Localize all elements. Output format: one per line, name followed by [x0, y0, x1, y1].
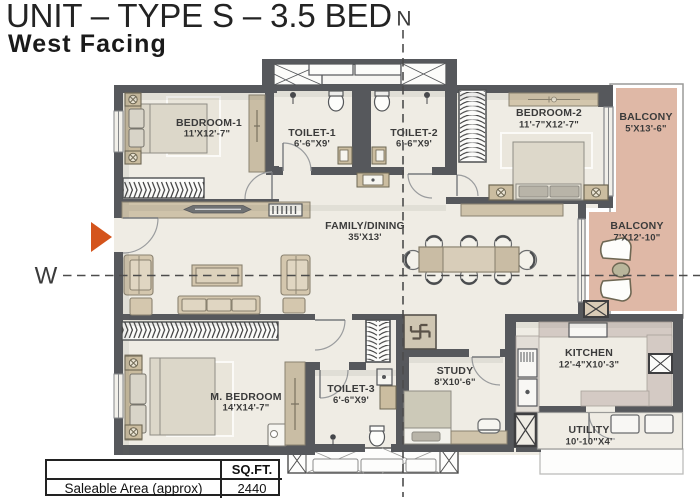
- svg-text:10'-10"X4': 10'-10"X4': [566, 437, 613, 448]
- svg-text:STUDY: STUDY: [437, 365, 474, 377]
- svg-text:6'-6"X9': 6'-6"X9': [396, 139, 432, 150]
- svg-text:7'X12'-10": 7'X12'-10": [614, 233, 661, 244]
- svg-text:M. BEDROOM: M. BEDROOM: [210, 391, 281, 403]
- svg-text:12'-4"X10'-3": 12'-4"X10'-3": [559, 360, 620, 371]
- svg-text:UTILITY: UTILITY: [568, 424, 609, 436]
- svg-text:TOILET-2: TOILET-2: [390, 127, 438, 139]
- svg-text:6'-6"X9': 6'-6"X9': [294, 139, 330, 150]
- svg-text:5'X13'-6": 5'X13'-6": [625, 124, 666, 135]
- svg-text:W: W: [35, 263, 58, 290]
- svg-text:TOILET-3: TOILET-3: [327, 383, 375, 395]
- svg-text:BALCONY: BALCONY: [610, 220, 663, 232]
- svg-text:KITCHEN: KITCHEN: [565, 347, 613, 359]
- svg-text:BEDROOM-2: BEDROOM-2: [516, 107, 582, 119]
- svg-text:11'-7"X12'-7": 11'-7"X12'-7": [519, 120, 579, 131]
- svg-text:N: N: [396, 8, 411, 31]
- svg-text:11'X12'-7": 11'X12'-7": [184, 129, 230, 140]
- svg-text:TOILET-1: TOILET-1: [288, 127, 336, 139]
- svg-text:35'X13': 35'X13': [348, 232, 381, 243]
- svg-text:8'X10'-6": 8'X10'-6": [434, 377, 475, 388]
- svg-text:14'X14'-7": 14'X14'-7": [223, 403, 270, 414]
- svg-text:FAMILY/DINING: FAMILY/DINING: [325, 220, 405, 232]
- svg-text:6'-6"X9': 6'-6"X9': [333, 395, 369, 406]
- svg-text:BALCONY: BALCONY: [619, 111, 672, 123]
- svg-text:BEDROOM-1: BEDROOM-1: [176, 117, 242, 129]
